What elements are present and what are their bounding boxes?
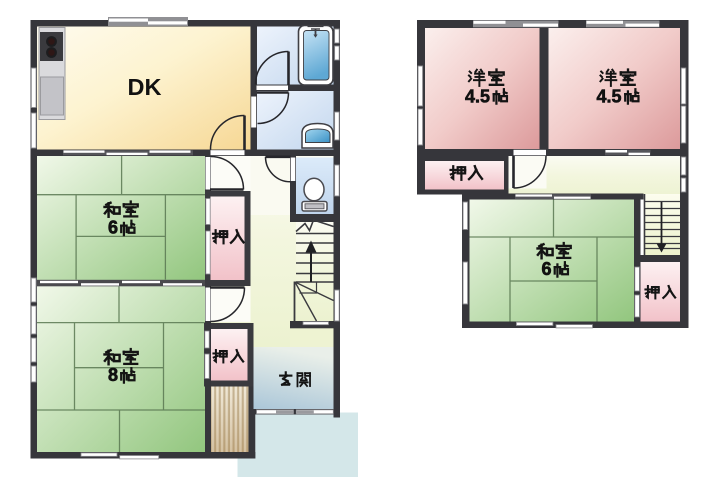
svg-text:8: 8: [108, 365, 118, 385]
svg-text:6: 6: [108, 218, 118, 238]
svg-text:DK: DK: [128, 74, 162, 100]
svg-text:6: 6: [541, 259, 551, 279]
svg-text:4.5: 4.5: [596, 87, 621, 107]
svg-text:4.5: 4.5: [465, 87, 490, 107]
